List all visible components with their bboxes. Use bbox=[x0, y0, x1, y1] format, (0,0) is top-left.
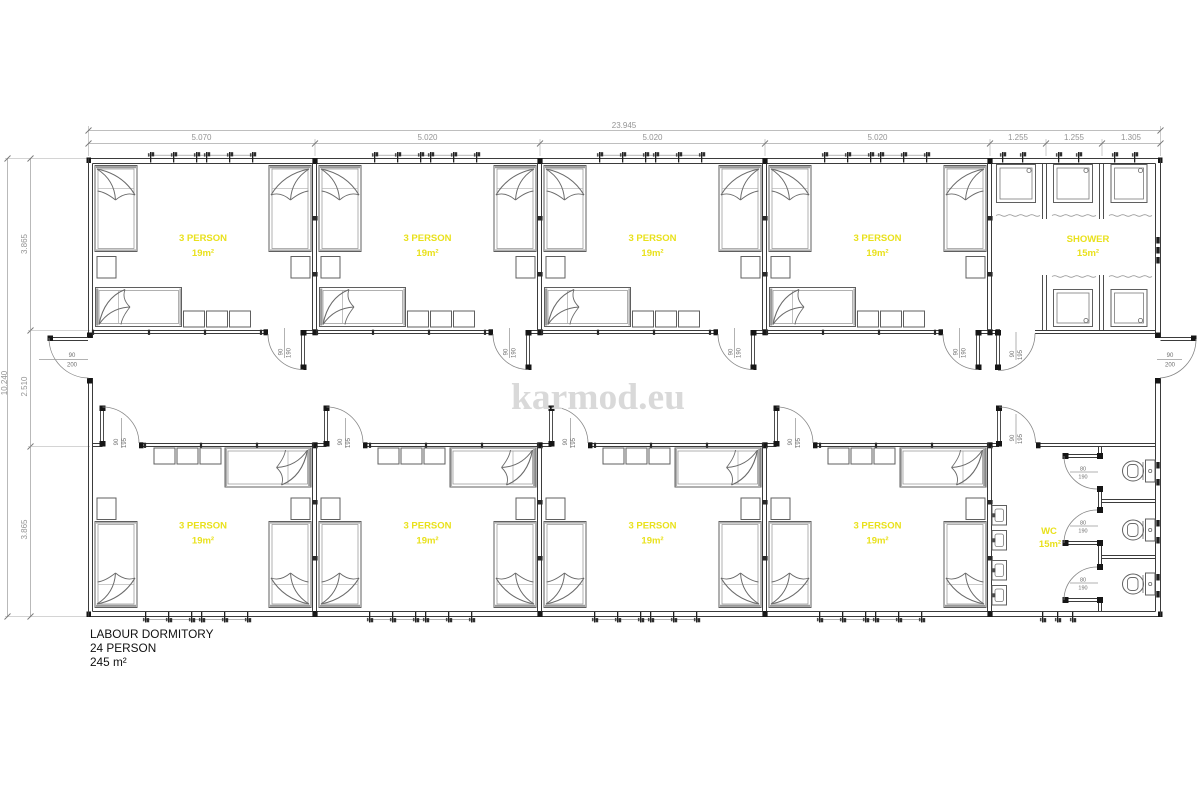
svg-text:190: 190 bbox=[287, 347, 293, 358]
svg-text:195: 195 bbox=[1018, 433, 1024, 444]
svg-text:SHOWER: SHOWER bbox=[1067, 234, 1110, 245]
svg-text:19m²: 19m² bbox=[192, 248, 214, 259]
svg-text:LABOUR DORMITORY: LABOUR DORMITORY bbox=[90, 627, 214, 641]
svg-text:90: 90 bbox=[954, 348, 960, 355]
svg-text:80: 80 bbox=[1080, 467, 1086, 473]
svg-text:19m²: 19m² bbox=[192, 536, 214, 547]
svg-text:90: 90 bbox=[1010, 350, 1016, 357]
svg-text:195: 195 bbox=[1018, 349, 1024, 360]
svg-text:190: 190 bbox=[962, 347, 968, 358]
svg-text:19m²: 19m² bbox=[641, 536, 663, 547]
svg-text:90: 90 bbox=[504, 348, 510, 355]
svg-text:19m²: 19m² bbox=[866, 536, 888, 547]
svg-text:3 PERSON: 3 PERSON bbox=[628, 233, 676, 244]
svg-text:1.255: 1.255 bbox=[1064, 133, 1085, 142]
svg-text:90: 90 bbox=[114, 438, 120, 445]
svg-text:90: 90 bbox=[1010, 434, 1016, 441]
svg-text:19m²: 19m² bbox=[641, 248, 663, 259]
svg-text:3 PERSON: 3 PERSON bbox=[179, 233, 227, 244]
svg-text:3 PERSON: 3 PERSON bbox=[853, 233, 901, 244]
svg-text:195: 195 bbox=[122, 437, 128, 448]
svg-text:90: 90 bbox=[788, 438, 794, 445]
svg-text:karmod.eu: karmod.eu bbox=[511, 377, 685, 418]
svg-text:90: 90 bbox=[1167, 353, 1174, 359]
svg-text:3.865: 3.865 bbox=[20, 519, 29, 540]
svg-text:3 PERSON: 3 PERSON bbox=[628, 521, 676, 532]
svg-text:90: 90 bbox=[69, 353, 76, 359]
svg-text:5.020: 5.020 bbox=[417, 133, 438, 142]
svg-text:24 PERSON: 24 PERSON bbox=[90, 641, 156, 655]
svg-text:190: 190 bbox=[1078, 529, 1087, 535]
svg-text:90: 90 bbox=[729, 348, 735, 355]
svg-text:10.240: 10.240 bbox=[0, 370, 9, 395]
svg-text:15m²: 15m² bbox=[1039, 539, 1061, 550]
svg-text:3.865: 3.865 bbox=[20, 233, 29, 254]
svg-text:3 PERSON: 3 PERSON bbox=[853, 521, 901, 532]
svg-text:190: 190 bbox=[1078, 586, 1087, 592]
svg-text:3 PERSON: 3 PERSON bbox=[403, 233, 451, 244]
svg-text:195: 195 bbox=[346, 437, 352, 448]
svg-text:5.020: 5.020 bbox=[867, 133, 888, 142]
svg-text:90: 90 bbox=[279, 348, 285, 355]
svg-text:WC: WC bbox=[1041, 526, 1057, 537]
svg-text:3 PERSON: 3 PERSON bbox=[403, 521, 451, 532]
svg-text:5.070: 5.070 bbox=[191, 133, 212, 142]
svg-text:19m²: 19m² bbox=[416, 536, 438, 547]
svg-text:200: 200 bbox=[1165, 363, 1176, 369]
svg-text:195: 195 bbox=[796, 437, 802, 448]
svg-text:23.945: 23.945 bbox=[612, 121, 637, 130]
svg-text:190: 190 bbox=[1078, 475, 1087, 481]
svg-text:200: 200 bbox=[67, 363, 78, 369]
svg-text:2.510: 2.510 bbox=[20, 376, 29, 397]
svg-text:90: 90 bbox=[338, 438, 344, 445]
svg-text:19m²: 19m² bbox=[416, 248, 438, 259]
svg-text:1.255: 1.255 bbox=[1008, 133, 1029, 142]
svg-text:195: 195 bbox=[571, 437, 577, 448]
svg-text:15m²: 15m² bbox=[1077, 248, 1099, 259]
svg-text:5.020: 5.020 bbox=[642, 133, 663, 142]
svg-text:190: 190 bbox=[737, 347, 743, 358]
svg-text:245 m²: 245 m² bbox=[90, 655, 127, 669]
svg-text:3 PERSON: 3 PERSON bbox=[179, 521, 227, 532]
svg-text:1.305: 1.305 bbox=[1121, 133, 1142, 142]
svg-text:80: 80 bbox=[1080, 578, 1086, 584]
svg-text:80: 80 bbox=[1080, 521, 1086, 527]
svg-text:19m²: 19m² bbox=[866, 248, 888, 259]
svg-text:90: 90 bbox=[563, 438, 569, 445]
svg-text:190: 190 bbox=[512, 347, 518, 358]
